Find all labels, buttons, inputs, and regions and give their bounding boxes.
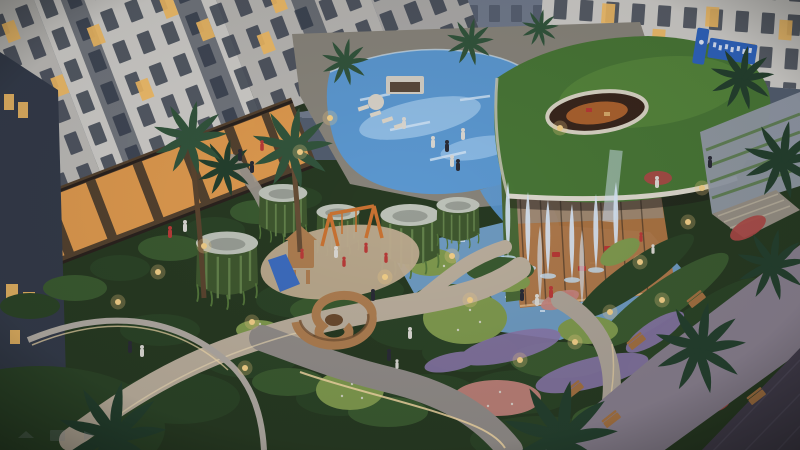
vignette [0,0,800,450]
rendering-canvas [0,0,800,450]
courtyard-rendering [0,0,800,450]
